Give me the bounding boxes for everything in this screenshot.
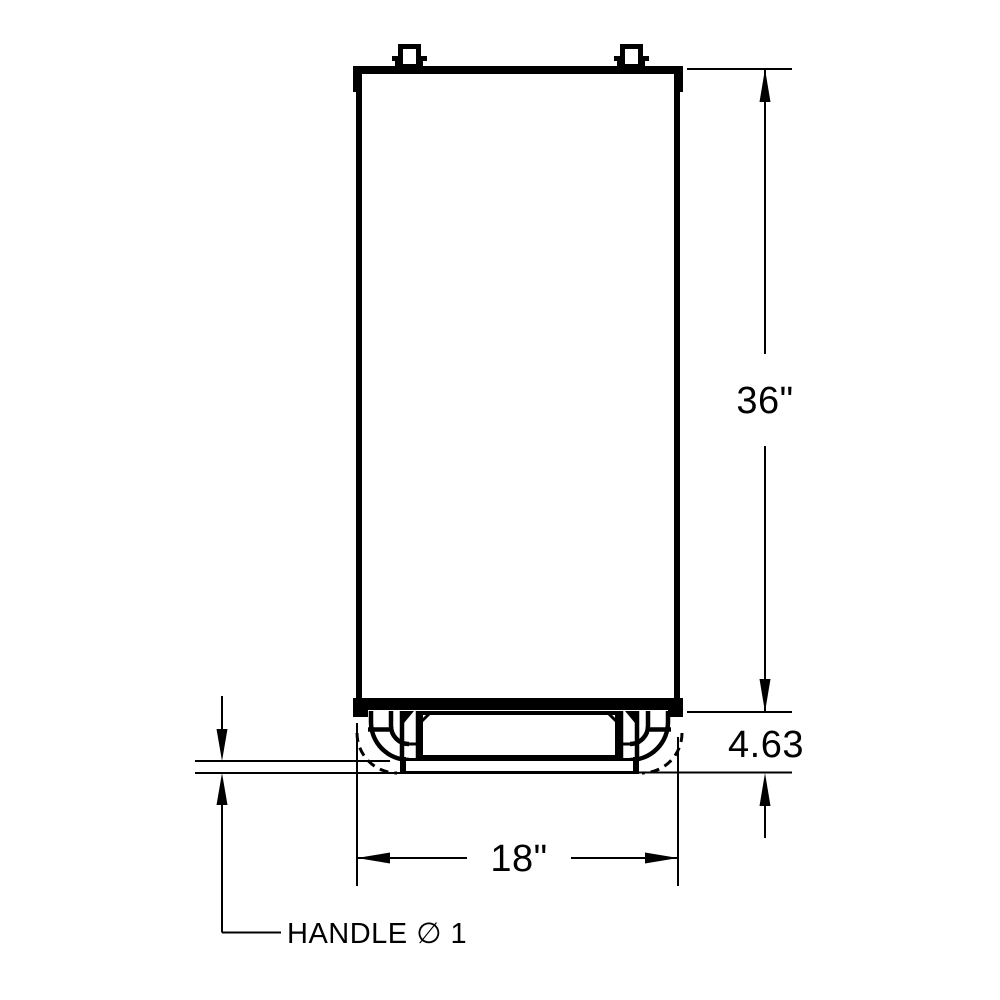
dim-height-label: 36"	[736, 380, 793, 422]
arrow-down-icon	[217, 729, 228, 761]
bottom-plate	[403, 760, 636, 773]
base-panel	[421, 713, 617, 757]
dim-width-label: 18"	[490, 838, 547, 880]
arrow-up-icon	[760, 69, 771, 102]
bottom-flange	[353, 698, 683, 710]
lid-post-right	[614, 47, 649, 69]
tank-front-view	[353, 47, 683, 775]
bottom-lip-left	[353, 710, 368, 717]
base-assembly	[357, 711, 682, 774]
post-foot	[639, 59, 645, 68]
lid-post-left	[392, 47, 427, 69]
plate-end-right	[633, 757, 639, 774]
technical-drawing: 36" 4.63 HANDLE ∅ 1 18"	[0, 0, 1000, 1000]
leg-gusset	[404, 711, 414, 723]
handle-callout-label: HANDLE ∅ 1	[287, 918, 467, 950]
post-outline	[623, 47, 641, 67]
arrow-up-icon	[760, 773, 771, 806]
plate-end-left	[400, 757, 406, 774]
wall-left	[356, 74, 362, 700]
arrow-left-icon	[357, 853, 390, 864]
wall-right	[674, 74, 680, 700]
arrow-up-icon	[217, 773, 228, 805]
post-foot	[617, 59, 623, 68]
dimension-height: 36"	[687, 69, 794, 712]
post-outline	[401, 47, 419, 67]
arrow-right-icon	[645, 853, 678, 864]
post-foot	[395, 59, 401, 68]
arrow-down-icon	[760, 679, 771, 712]
leg-gusset	[625, 711, 635, 723]
dim-base-height-label: 4.63	[728, 724, 804, 766]
post-foot	[417, 59, 423, 68]
